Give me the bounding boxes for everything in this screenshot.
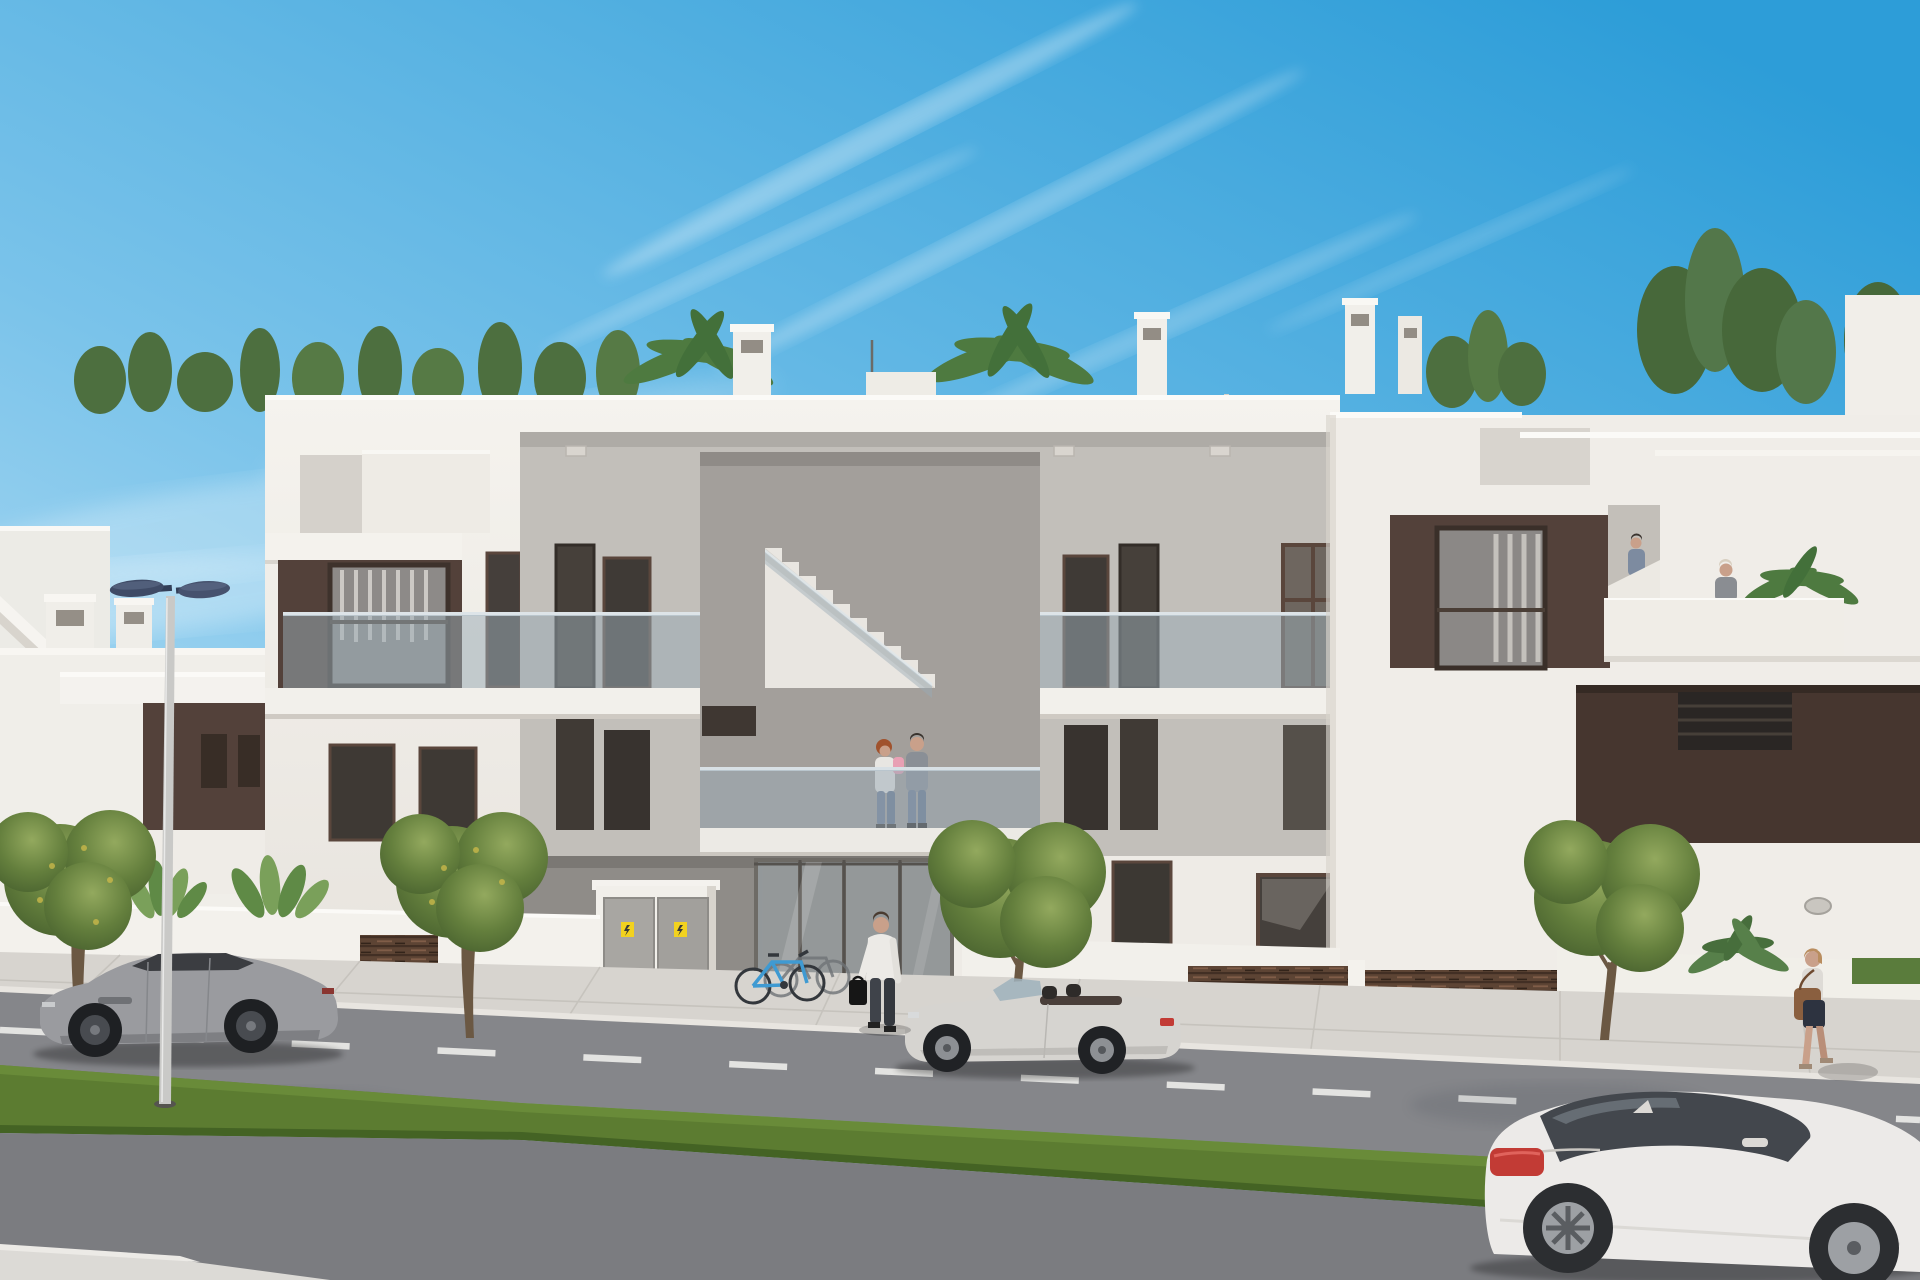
- wheel: [923, 1024, 971, 1072]
- stair-void: [700, 452, 1040, 856]
- white-coupe: [1470, 1092, 1920, 1280]
- briefcase: [849, 980, 867, 1005]
- roof-setback: [362, 452, 490, 533]
- window: [238, 735, 260, 787]
- hedge: [1852, 958, 1920, 984]
- window: [201, 734, 227, 788]
- chimney: [116, 602, 152, 652]
- wheel: [1078, 1026, 1126, 1074]
- rendering-scene: [0, 0, 1920, 1280]
- wheel: [1523, 1183, 1613, 1273]
- floor-slab: [1040, 688, 1340, 718]
- roof-setback: [300, 455, 362, 533]
- inner-glass-rail: [700, 770, 1040, 828]
- wheel: [68, 1003, 122, 1057]
- scene-canvas: [0, 0, 1920, 1280]
- wheel: [224, 999, 278, 1053]
- headrest: [1042, 986, 1057, 999]
- floor-slab: [265, 688, 700, 718]
- garage-panel: [1576, 685, 1920, 845]
- shutter-box: [702, 706, 756, 736]
- wall-lamp: [1805, 898, 1831, 914]
- balcony-niche: [1390, 515, 1610, 668]
- headrest: [1066, 984, 1081, 997]
- terrace-parapet: [1604, 600, 1844, 662]
